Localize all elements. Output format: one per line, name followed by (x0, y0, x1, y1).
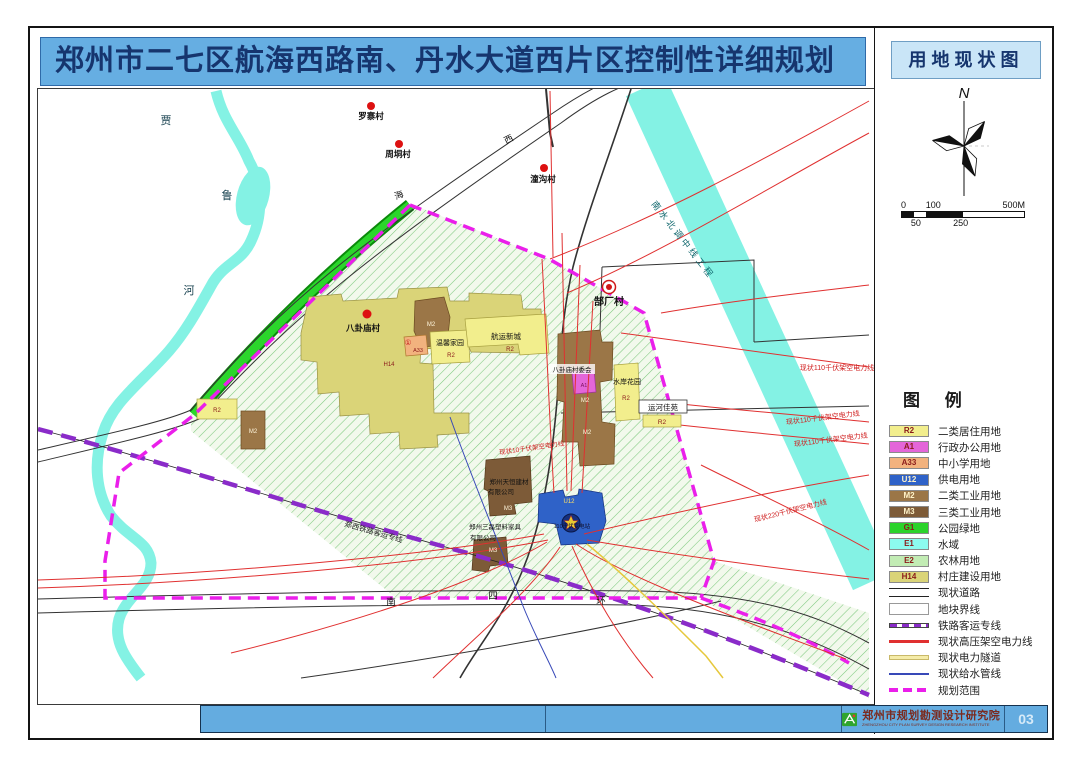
village-label: 潼沟村 (530, 174, 556, 184)
road-name-char: 环 (596, 596, 606, 607)
parcel-code: R2 (447, 353, 455, 359)
legend-item: H14 村庄建设用地 (889, 569, 1049, 585)
parcel-code: H14 (383, 362, 395, 368)
legend-item: 现状高压架空电力线 (889, 633, 1049, 649)
legend-swatch-e2: E2 (889, 555, 929, 567)
institute-block: 郑州市规划勘测设计研究院 ZHENGZHOU CITY PLAN SURVEY … (842, 706, 1004, 732)
legend-swatch-r2: R2 (889, 425, 929, 437)
legend-symbol-water-pipe (889, 673, 929, 676)
legend-swatch-m2: M2 (889, 490, 929, 502)
legend-swatch-m3: M3 (889, 506, 929, 518)
compass-rose: N (919, 84, 1009, 200)
estate-label: 水岸花园 (613, 377, 641, 386)
legend-symbol-power-line (889, 640, 929, 643)
legend-symbol-parcel-boundary (889, 603, 929, 615)
legend-item: A33 中小学用地 (889, 455, 1049, 471)
parcel-code: A1 (581, 383, 588, 389)
legend: 图 例 R2 二类居住用地 A1 行政办公用地 A33 中小学用地 U12 供电… (889, 386, 1049, 698)
legend-item: 地块界线 (889, 601, 1049, 617)
parcel-r2-shuian (614, 363, 640, 421)
estate-label: 温馨家园 (436, 338, 464, 347)
legend-swatch-a33: A33 (889, 457, 929, 469)
scale-bar: 0 100 500M 50 250 (901, 200, 1025, 229)
legend-swatch-h14: H14 (889, 571, 929, 583)
map-type-title: 用地现状图 (891, 41, 1041, 79)
village-label: 郜厂村 (594, 295, 624, 308)
legend-item: 铁路客运专线 (889, 617, 1049, 633)
scale-tick: 0 (901, 200, 906, 210)
legend-swatch-e1: E1 (889, 538, 929, 550)
village-dot (540, 164, 548, 172)
institute-logo (842, 710, 857, 729)
village-dot (367, 102, 375, 110)
legend-swatch-u12: U12 (889, 474, 929, 486)
footer-bar: 郑州市规划勘测设计研究院 ZHENGZHOU CITY PLAN SURVEY … (200, 705, 1048, 733)
legend-item: M3 三类工业用地 (889, 504, 1049, 520)
legend-item: 现状道路 (889, 585, 1049, 601)
legend-symbol-road (889, 588, 929, 597)
legend-item: R2 二类居住用地 (889, 423, 1049, 439)
company-label: 有限公司 (470, 533, 496, 542)
parcel-code: M2 (427, 322, 436, 328)
parcel-code: R2 (506, 347, 514, 353)
institute-name: 郑州市规划勘测设计研究院 (862, 710, 1004, 722)
page-title: 郑州市二七区航海西路南、丹水大道西片区控制性详细规划 (40, 37, 866, 86)
legend-item: E2 农林用地 (889, 553, 1049, 569)
river-name-char: 河 (184, 284, 195, 297)
company-label: 郑州三磊塑料家具 (469, 522, 522, 531)
river-name-char: 鲁 (222, 188, 233, 202)
estate-label: 110千伏变电站 (554, 522, 591, 530)
company-label: 郑州天恒建材 (490, 477, 530, 486)
footer-segment (201, 706, 546, 732)
village-dot (363, 310, 372, 319)
legend-item: 现状给水管线 (889, 666, 1049, 682)
road-name-char: 四 (488, 591, 498, 602)
road-name-char: 南 (386, 596, 396, 608)
legend-symbol-power-tunnel (889, 655, 929, 660)
parcel-code: M2 (581, 398, 590, 404)
estate-label: 航运新城 (491, 331, 521, 341)
village-dot (395, 140, 403, 148)
compass-north-label: N (959, 85, 970, 102)
plan-sheet-page: 郑州市二七区航海西路南、丹水大道西片区控制性详细规划 (0, 0, 1080, 763)
parcel-code: R2 (213, 408, 221, 414)
estate-label: 运河佳苑 (648, 402, 678, 412)
footer-segment (546, 706, 842, 732)
legend-swatch-a1: A1 (889, 441, 929, 453)
land-use-map: 罗寨村 周垌村 潼沟村 郜厂村 八卦庙村 贾 鲁 河 南 四 环 海 西 南水北… (37, 88, 875, 705)
legend-symbol-railway (889, 623, 929, 628)
village-label: 周垌村 (385, 149, 411, 159)
power-line-label: 现状110千伏架空电力线 (800, 363, 874, 372)
scale-tick: 50 (911, 218, 921, 228)
legend-item: E1 水域 (889, 536, 1049, 552)
parcel-code: R2 (658, 419, 667, 426)
school-number-icon: ① (405, 338, 412, 347)
legend-item: 现状电力隧道 (889, 650, 1049, 666)
estate-label: 八卦庙村委会 (553, 365, 593, 374)
parcel-code: M3 (489, 548, 498, 554)
village-dot-circled-core (606, 284, 612, 290)
side-panel: 用地现状图 N 0 100 500M (874, 28, 1051, 734)
parcel-code: M3 (504, 506, 513, 512)
scale-tick: 500M (1002, 200, 1025, 210)
parcel-code: M2 (249, 429, 258, 435)
river-name-char: 贾 (161, 114, 172, 127)
scale-tick: 100 (926, 200, 941, 210)
institute-name-en: ZHENGZHOU CITY PLAN SURVEY DESIGN RESEAR… (862, 723, 990, 727)
legend-title: 图 例 (903, 386, 1049, 411)
parcel-code: A33 (413, 348, 423, 354)
village-label: 八卦庙村 (345, 323, 381, 333)
scale-bar-segments (901, 211, 1025, 218)
page-number: 03 (1004, 706, 1047, 732)
scale-tick: 250 (953, 218, 968, 228)
village-label: 罗寨村 (358, 111, 384, 121)
legend-item: U12 供电用地 (889, 472, 1049, 488)
company-label: 有限公司 (488, 487, 514, 496)
legend-item: G1 公园绿地 (889, 520, 1049, 536)
parcel-code: U12 (563, 499, 575, 505)
legend-item: A1 行政办公用地 (889, 439, 1049, 455)
legend-swatch-g1: G1 (889, 522, 929, 534)
legend-symbol-planning-boundary (889, 688, 929, 693)
legend-item: 规划范围 (889, 682, 1049, 698)
parcel-code: M2 (583, 430, 592, 436)
parcel-code: R2 (622, 396, 630, 402)
legend-item: M2 二类工业用地 (889, 488, 1049, 504)
